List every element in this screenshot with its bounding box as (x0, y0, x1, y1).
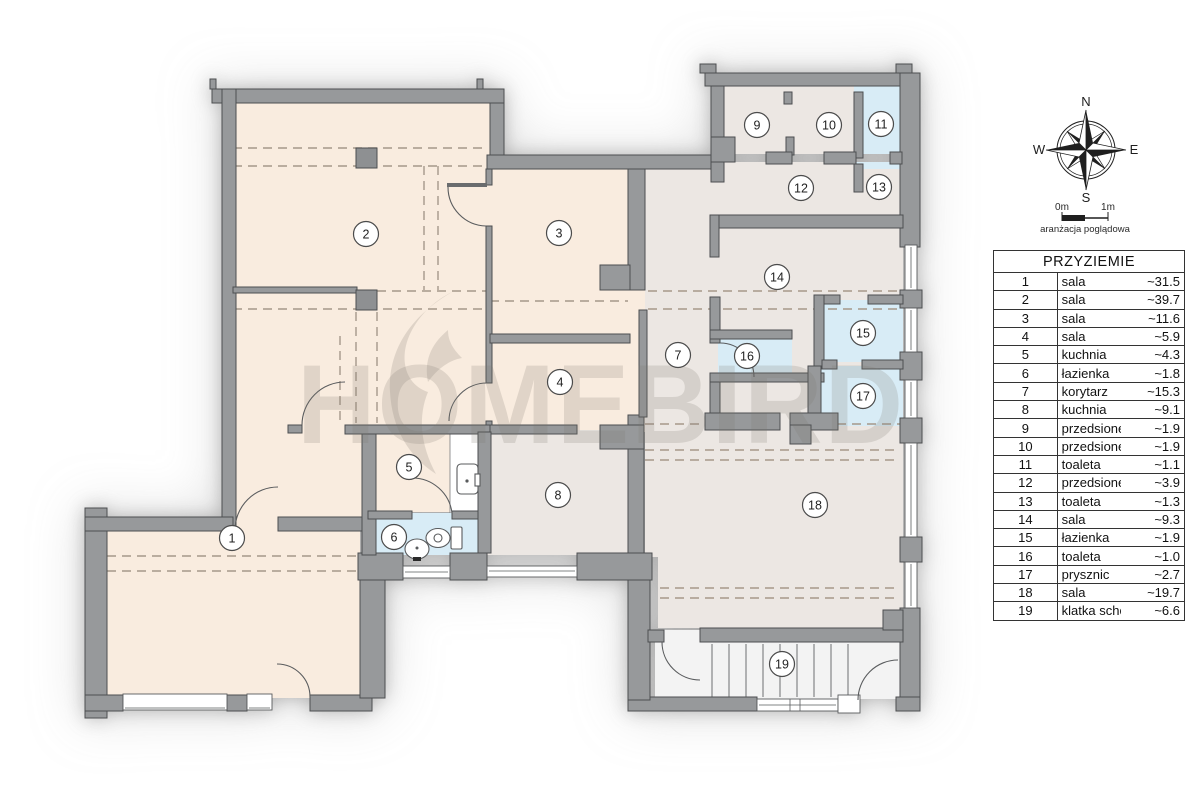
svg-text:13: 13 (872, 181, 886, 195)
legend-area: ~19.7 (1121, 584, 1185, 602)
legend-row: 18sala~19.7 (994, 584, 1185, 602)
svg-text:6: 6 (391, 531, 398, 545)
washbasin-icon (405, 539, 429, 561)
svg-text:5: 5 (406, 461, 413, 475)
room-1-area (107, 528, 360, 698)
legend-name: przedsionek (1057, 474, 1121, 492)
room-marker-10: 10 (817, 113, 842, 138)
svg-text:9: 9 (754, 119, 761, 133)
legend-row: 6łazienka~1.8 (994, 364, 1185, 382)
room-marker-18: 18 (803, 493, 828, 518)
scale-bar: 0m 1m aranżacja poglądowa (1040, 202, 1131, 235)
legend-row: 13toaleta~1.3 (994, 492, 1185, 510)
svg-text:16: 16 (740, 350, 754, 364)
legend-area: ~1.8 (1121, 364, 1185, 382)
legend-num: 9 (994, 419, 1058, 437)
svg-text:3: 3 (556, 227, 563, 241)
legend-table: PRZYZIEMIE 1sala~31.52sala~39.73sala~11.… (993, 250, 1185, 621)
legend-row: 2sala~39.7 (994, 291, 1185, 309)
legend-area: ~1.9 (1121, 529, 1185, 547)
legend-row: 12przedsionek~3.9 (994, 474, 1185, 492)
legend-name: łazienka (1057, 529, 1121, 547)
legend-num: 14 (994, 510, 1058, 528)
legend-row: 11toaleta~1.1 (994, 455, 1185, 473)
legend-row: 7korytarz~15.3 (994, 382, 1185, 400)
room-marker-6: 6 (382, 525, 407, 550)
svg-text:15: 15 (856, 327, 870, 341)
legend-num: 8 (994, 401, 1058, 419)
legend-name: kuchnia (1057, 401, 1121, 419)
legend-name: sala (1057, 584, 1121, 602)
legend-area: ~1.9 (1121, 419, 1185, 437)
legend-name: prysznic (1057, 565, 1121, 583)
legend-num: 11 (994, 455, 1058, 473)
legend-name: toaleta (1057, 455, 1121, 473)
scale-one-label: 1m (1101, 202, 1115, 213)
legend-num: 19 (994, 602, 1058, 620)
legend-name: klatka schodowa (1057, 602, 1121, 620)
legend-num: 13 (994, 492, 1058, 510)
legend-row: 5kuchnia~4.3 (994, 346, 1185, 364)
legend-area: ~4.3 (1121, 346, 1185, 364)
legend-row: 17prysznic~2.7 (994, 565, 1185, 583)
room-marker-4: 4 (548, 370, 573, 395)
legend-area: ~5.9 (1121, 327, 1185, 345)
floorplan-page: { "watermark": { "text": "HOMEBIRD" }, "… (0, 0, 1200, 790)
room-marker-7: 7 (666, 343, 691, 368)
legend-num: 3 (994, 309, 1058, 327)
legend-name: sala (1057, 273, 1121, 291)
svg-text:11: 11 (875, 118, 888, 132)
legend-name: przedsionek (1057, 437, 1121, 455)
legend-name: przedsionek (1057, 419, 1121, 437)
legend-num: 6 (994, 364, 1058, 382)
legend-num: 1 (994, 273, 1058, 291)
legend-area: ~9.3 (1121, 510, 1185, 528)
legend-area: ~1.3 (1121, 492, 1185, 510)
legend-row: 10przedsionek~1.9 (994, 437, 1185, 455)
svg-text:8: 8 (555, 489, 562, 503)
svg-text:10: 10 (822, 119, 836, 133)
legend-num: 17 (994, 565, 1058, 583)
legend-num: 4 (994, 327, 1058, 345)
room-marker-13: 13 (867, 175, 892, 200)
compass-e-label: E (1130, 142, 1139, 157)
legend-name: łazienka (1057, 364, 1121, 382)
watermark-text: HOMEBIRD (297, 342, 905, 467)
sink-icon (457, 464, 480, 494)
svg-text:1: 1 (229, 532, 236, 546)
legend-num: 7 (994, 382, 1058, 400)
room-marker-19: 19 (770, 652, 795, 677)
legend-name: toaleta (1057, 492, 1121, 510)
legend-name: sala (1057, 510, 1121, 528)
legend-area: ~39.7 (1121, 291, 1185, 309)
compass-s-label: S (1082, 190, 1091, 205)
legend-name: sala (1057, 291, 1121, 309)
building: HOMEBIRD 12345678910111213141516171819 (85, 64, 922, 718)
legend-name: kuchnia (1057, 346, 1121, 364)
compass-n-label: N (1081, 94, 1090, 109)
legend-row: 19klatka schodowa~6.6 (994, 602, 1185, 620)
legend-area: ~11.6 (1121, 309, 1185, 327)
legend-row: 4sala~5.9 (994, 327, 1185, 345)
svg-text:17: 17 (856, 390, 870, 404)
legend-num: 18 (994, 584, 1058, 602)
room-marker-15: 15 (851, 321, 876, 346)
legend-area: ~2.7 (1121, 565, 1185, 583)
legend-num: 10 (994, 437, 1058, 455)
room-marker-5: 5 (397, 455, 422, 480)
room-marker-1: 1 (220, 526, 245, 551)
legend-name: sala (1057, 309, 1121, 327)
legend-row: 1sala~31.5 (994, 273, 1185, 291)
legend-name: toaleta (1057, 547, 1121, 565)
legend-num: 5 (994, 346, 1058, 364)
compass-rose: N E S W (1033, 94, 1139, 205)
legend-area: ~1.1 (1121, 455, 1185, 473)
room-marker-3: 3 (547, 221, 572, 246)
legend-row: 9przedsionek~1.9 (994, 419, 1185, 437)
legend-num: 2 (994, 291, 1058, 309)
legend-row: 16toaleta~1.0 (994, 547, 1185, 565)
svg-text:19: 19 (775, 658, 789, 672)
legend-num: 12 (994, 474, 1058, 492)
legend-name: sala (1057, 327, 1121, 345)
legend-area: ~9.1 (1121, 401, 1185, 419)
legend-row: 8kuchnia~9.1 (994, 401, 1185, 419)
legend-num: 15 (994, 529, 1058, 547)
room-marker-2: 2 (354, 222, 379, 247)
legend-row: 3sala~11.6 (994, 309, 1185, 327)
legend-row: 14sala~9.3 (994, 510, 1185, 528)
room-marker-14: 14 (765, 265, 790, 290)
toilet-icon (426, 527, 462, 549)
legend-row: 15łazienka~1.9 (994, 529, 1185, 547)
legend-area: ~6.6 (1121, 602, 1185, 620)
svg-text:18: 18 (808, 499, 822, 513)
svg-text:7: 7 (675, 349, 682, 363)
room-marker-12: 12 (789, 176, 814, 201)
scale-zero-label: 0m (1055, 202, 1069, 213)
room-marker-9: 9 (745, 113, 770, 138)
legend-num: 16 (994, 547, 1058, 565)
svg-text:12: 12 (794, 182, 808, 196)
legend-area: ~1.0 (1121, 547, 1185, 565)
room-marker-8: 8 (546, 483, 571, 508)
legend-area: ~31.5 (1121, 273, 1185, 291)
legend-area: ~3.9 (1121, 474, 1185, 492)
scale-caption: aranżacja poglądowa (1040, 224, 1131, 235)
room-marker-11: 11 (869, 112, 894, 137)
legend-area: ~15.3 (1121, 382, 1185, 400)
svg-text:4: 4 (557, 376, 564, 390)
compass-w-label: W (1033, 142, 1046, 157)
room-marker-16: 16 (735, 344, 760, 369)
svg-text:2: 2 (363, 228, 370, 242)
legend-title: PRZYZIEMIE (994, 251, 1185, 273)
room-marker-17: 17 (851, 384, 876, 409)
legend-name: korytarz (1057, 382, 1121, 400)
svg-text:14: 14 (770, 271, 784, 285)
legend-area: ~1.9 (1121, 437, 1185, 455)
